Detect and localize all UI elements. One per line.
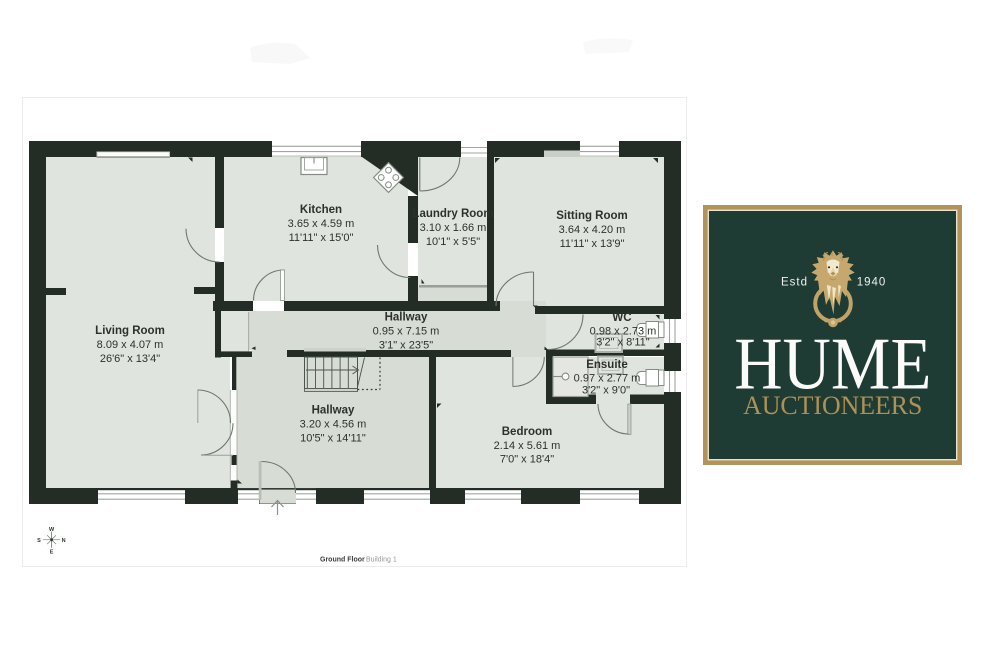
svg-text:3'2" x 8'11": 3'2" x 8'11"	[596, 337, 649, 349]
svg-text:Bedroom: Bedroom	[502, 426, 552, 438]
svg-text:7'0" x 18'4": 7'0" x 18'4"	[500, 454, 554, 466]
svg-text:0.95 x 7.15 m: 0.95 x 7.15 m	[373, 326, 440, 338]
svg-text:Hallway: Hallway	[312, 405, 355, 417]
svg-text:S: S	[37, 538, 41, 544]
svg-text:3.64 x 4.20 m: 3.64 x 4.20 m	[559, 224, 626, 236]
svg-text:8.09 x 4.07 m: 8.09 x 4.07 m	[97, 339, 164, 351]
svg-text:11'11" x 13'9": 11'11" x 13'9"	[560, 238, 625, 250]
svg-text:3.10 x 1.66 m: 3.10 x 1.66 m	[420, 222, 487, 234]
svg-text:3.65 x 4.59 m: 3.65 x 4.59 m	[288, 218, 355, 230]
svg-text:Laundry Room: Laundry Room	[412, 208, 493, 220]
svg-text:3'1" x 23'5": 3'1" x 23'5"	[379, 340, 433, 352]
svg-text:3'2" x 9'0": 3'2" x 9'0"	[582, 385, 630, 397]
svg-text:Ensuite: Ensuite	[586, 359, 628, 371]
svg-text:10'5" x 14'11": 10'5" x 14'11"	[300, 433, 366, 445]
svg-text:Kitchen: Kitchen	[300, 204, 342, 216]
svg-text:Sitting Room: Sitting Room	[556, 210, 628, 222]
svg-text:Living Room: Living Room	[95, 325, 165, 337]
svg-text:Estd: Estd	[781, 277, 808, 289]
svg-text:1940: 1940	[857, 277, 887, 289]
svg-text:AUCTIONEERS: AUCTIONEERS	[743, 391, 922, 420]
svg-text:2.14 x 5.61 m: 2.14 x 5.61 m	[494, 440, 561, 452]
svg-text:Ground Floor: Ground Floor	[320, 557, 365, 564]
svg-text:Building 1: Building 1	[366, 557, 397, 564]
svg-text:3.20 x 4.56 m: 3.20 x 4.56 m	[300, 419, 367, 431]
svg-text:WC: WC	[612, 312, 631, 324]
svg-text:10'1" x 5'5": 10'1" x 5'5"	[426, 236, 480, 248]
svg-text:E: E	[50, 550, 54, 556]
svg-text:11'11" x 15'0": 11'11" x 15'0"	[289, 232, 354, 244]
svg-text:26'6" x 13'4": 26'6" x 13'4"	[100, 353, 160, 365]
svg-text:Hallway: Hallway	[385, 312, 428, 324]
svg-text:0.97 x 2.77 m: 0.97 x 2.77 m	[574, 373, 641, 385]
svg-text:N: N	[62, 538, 66, 544]
svg-text:W: W	[49, 527, 55, 533]
